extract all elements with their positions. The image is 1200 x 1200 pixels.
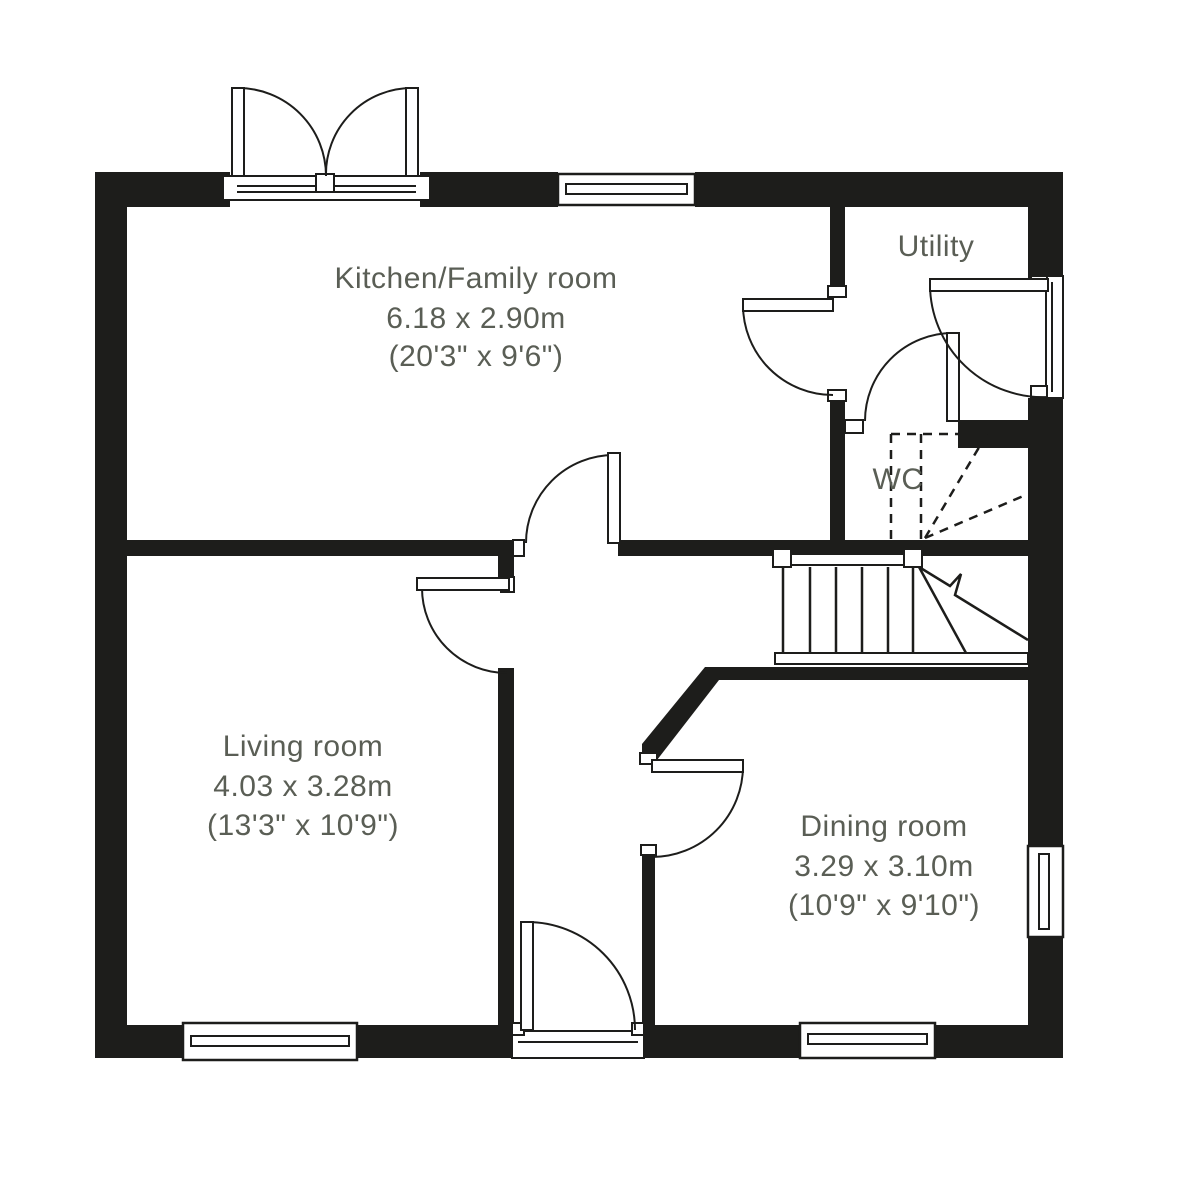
hall-west-wall [498,668,514,1025]
stair-bottom-rail [775,653,1028,664]
dining-west-wall [642,853,655,1025]
wall-segment [357,1025,518,1058]
wall-segment [695,172,1063,207]
french-door-swing-left [238,88,326,176]
kitchen-imperial-dims: (20'3" x 9'6") [389,340,564,373]
door-leaf [743,299,833,311]
living-label: Living room [223,730,384,763]
window-dining-right [1028,846,1063,937]
wall-segment [638,1025,800,1058]
floor-plan-page: Kitchen/Family room 6.18 x 2.90m (20'3" … [0,0,1200,1200]
door-leaf [652,760,743,772]
room-labels: Kitchen/Family room 6.18 x 2.90m (20'3" … [207,230,980,922]
kitchen-living-wall [127,540,515,556]
dining-diagonal-wall [642,667,719,760]
newel-post [773,549,791,567]
living-imperial-dims: (13'3" x 10'9") [207,809,399,842]
hall-west-wall-stub [498,556,514,578]
living-metric-dims: 4.03 x 3.28m [213,770,392,803]
dining-north-wall [713,667,1028,680]
wall-segment [420,172,558,207]
french-doors [223,88,430,200]
french-door-leaf-right [406,88,418,176]
windows [183,174,1063,1060]
wall-segment [935,1025,1063,1058]
kitchen-metric-dims: 6.18 x 2.90m [386,302,565,335]
stair-direction-break [919,567,1028,640]
french-door-center-post [316,174,334,192]
wc-label: WC [873,463,924,496]
wall-segment [95,172,127,1058]
dining-imperial-dims: (10'9" x 9'10") [788,889,980,922]
window-kitchen-top [558,174,695,205]
wall-segment [1028,398,1063,848]
wc-west-wall [830,399,845,545]
wall-segment [1028,172,1063,278]
wall-segment [95,1025,183,1058]
door-leaf [417,578,509,590]
utility-label: Utility [898,230,975,263]
door-leaf [608,453,620,543]
window-dining-bottom [800,1023,935,1058]
exterior-walls [95,172,1063,1058]
front-door [512,922,644,1058]
floor-plan: Kitchen/Family room 6.18 x 2.90m (20'3" … [0,0,1200,1200]
dining-metric-dims: 3.29 x 3.10m [794,850,973,883]
door-leaf [521,922,533,1030]
newel-post [904,549,922,567]
kitchen-label: Kitchen/Family room [335,262,618,295]
wc-door [845,333,959,433]
kitchen-utility-wall [830,207,845,288]
living-room-door [417,577,514,673]
dining-label: Dining room [800,810,967,843]
french-door-leaf-left [232,88,244,176]
staircase [773,549,1028,664]
kitchen-lobby-door [743,286,846,401]
dining-room-door [640,753,743,857]
kitchen-hall-door [513,453,620,556]
utility-south-wall [958,420,1028,448]
french-door-swing-right [326,88,412,176]
window-living-bottom [183,1023,357,1060]
door-leaf [930,279,1048,291]
stair-top-rail [775,554,922,565]
